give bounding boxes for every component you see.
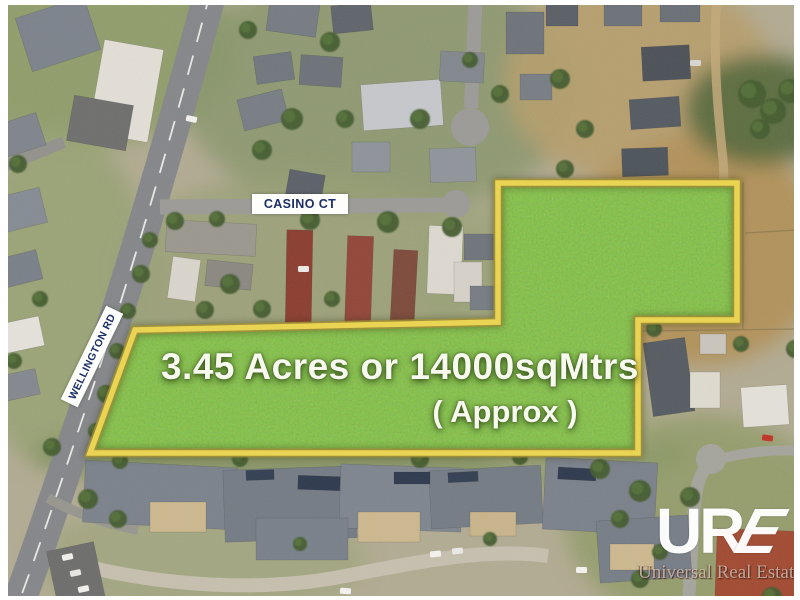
- parcel-approx-text: ( Approx ): [305, 394, 705, 430]
- listing-photo: CASINO CT WELLINGTON RD 3.45 Acres or 14…: [0, 0, 800, 600]
- street-label-casino-ct: CASINO CT: [252, 194, 348, 214]
- brand-logo: URE Universal Real Estate: [638, 500, 798, 584]
- parcel-area-text: 3.45 Acres or 14000sqMtrs: [0, 346, 800, 388]
- brand-logo-mark: URE: [638, 500, 798, 562]
